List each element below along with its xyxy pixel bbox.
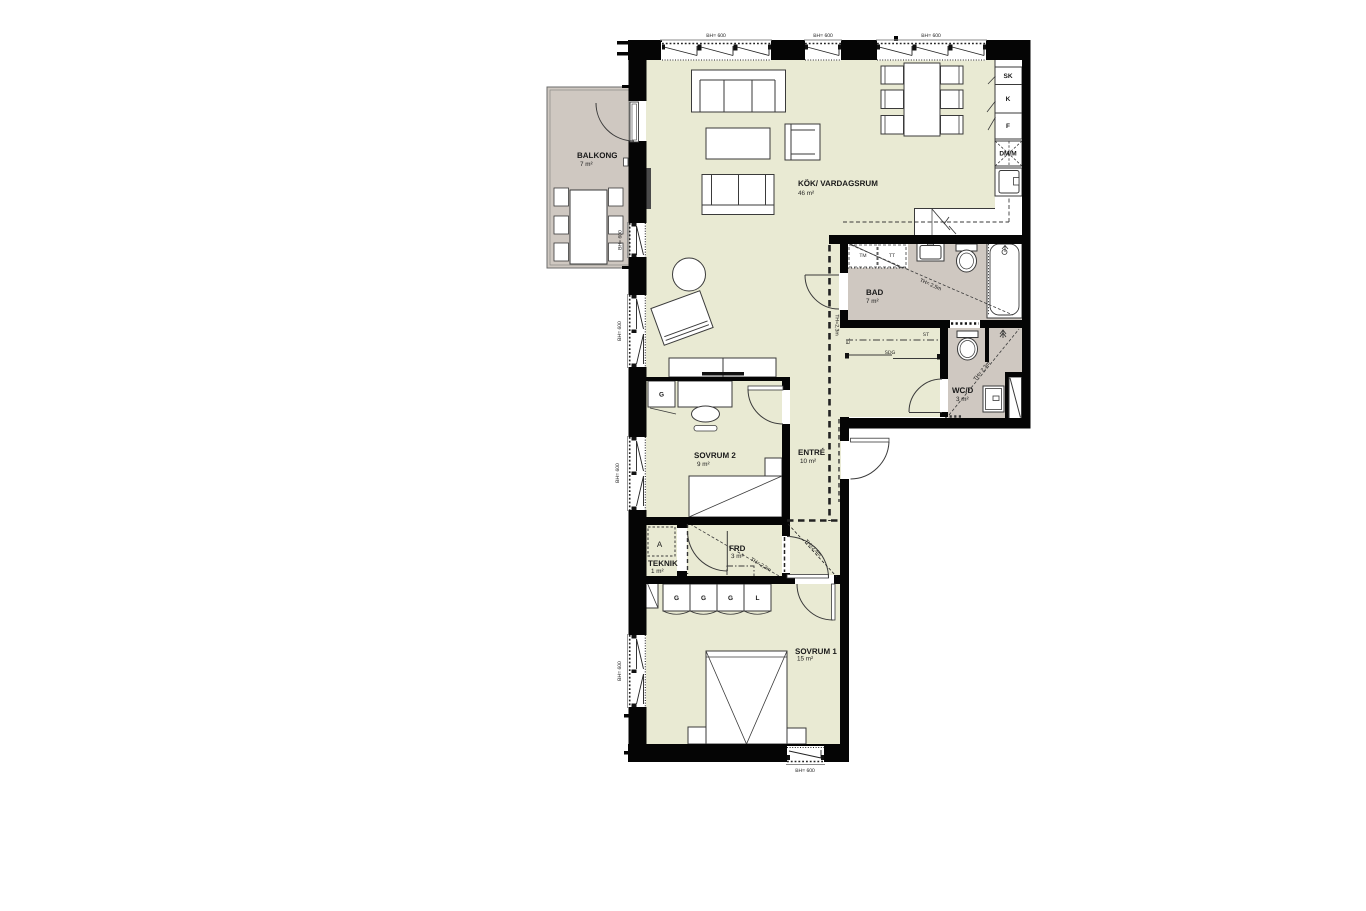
svg-text:G: G [728, 595, 733, 602]
svg-text:BAD: BAD [866, 288, 884, 297]
svg-text:K: K [1006, 96, 1011, 103]
svg-text:7 m²: 7 m² [866, 298, 879, 305]
svg-text:A: A [657, 540, 663, 549]
svg-text:1 m²: 1 m² [651, 568, 664, 575]
svg-text:BH= 600: BH= 600 [813, 33, 833, 39]
svg-text:BH= 600: BH= 600 [615, 463, 621, 483]
svg-text:G: G [701, 595, 706, 602]
svg-text:L: L [756, 595, 760, 602]
svg-text:SOVRUM 2: SOVRUM 2 [694, 451, 736, 460]
svg-text:10 m²: 10 m² [800, 458, 816, 465]
svg-text:DM/M: DM/M [999, 151, 1016, 158]
svg-text:FRD: FRD [729, 544, 746, 553]
svg-text:TEKNIK: TEKNIK [648, 559, 678, 568]
svg-text:G: G [674, 595, 679, 602]
svg-text:46 m²: 46 m² [798, 190, 814, 197]
svg-text:KÖK/ VARDAGSRUM: KÖK/ VARDAGSRUM [798, 179, 878, 188]
svg-text:TM: TM [859, 253, 866, 259]
svg-text:9 m²: 9 m² [697, 461, 710, 468]
svg-text:3 m²: 3 m² [956, 396, 969, 403]
svg-text:3 m²: 3 m² [731, 553, 744, 560]
svg-text:7 m²: 7 m² [580, 161, 593, 168]
svg-text:TT: TT [889, 253, 895, 259]
svg-text:TH=2,3m: TH=2,3m [834, 314, 840, 335]
svg-text:SDG: SDG [885, 350, 896, 356]
svg-text:BH= 600: BH= 600 [617, 661, 623, 681]
svg-text:EL: EL [846, 338, 852, 344]
svg-text:G: G [659, 392, 664, 399]
svg-text:SK: SK [1003, 73, 1012, 80]
svg-text:BH= 600: BH= 600 [795, 768, 815, 774]
svg-text:BH= 600: BH= 600 [617, 321, 623, 341]
svg-text:BH= 600: BH= 600 [618, 230, 624, 250]
svg-text:BH= 600: BH= 600 [706, 33, 726, 39]
svg-text:WC/D: WC/D [952, 386, 974, 395]
svg-text:BH= 600: BH= 600 [921, 33, 941, 39]
svg-text:ST: ST [923, 332, 929, 338]
svg-text:BALKONG: BALKONG [577, 151, 617, 160]
svg-text:ENTRÉ: ENTRÉ [798, 447, 826, 457]
svg-text:15 m²: 15 m² [797, 656, 813, 663]
svg-text:F: F [1006, 123, 1010, 130]
